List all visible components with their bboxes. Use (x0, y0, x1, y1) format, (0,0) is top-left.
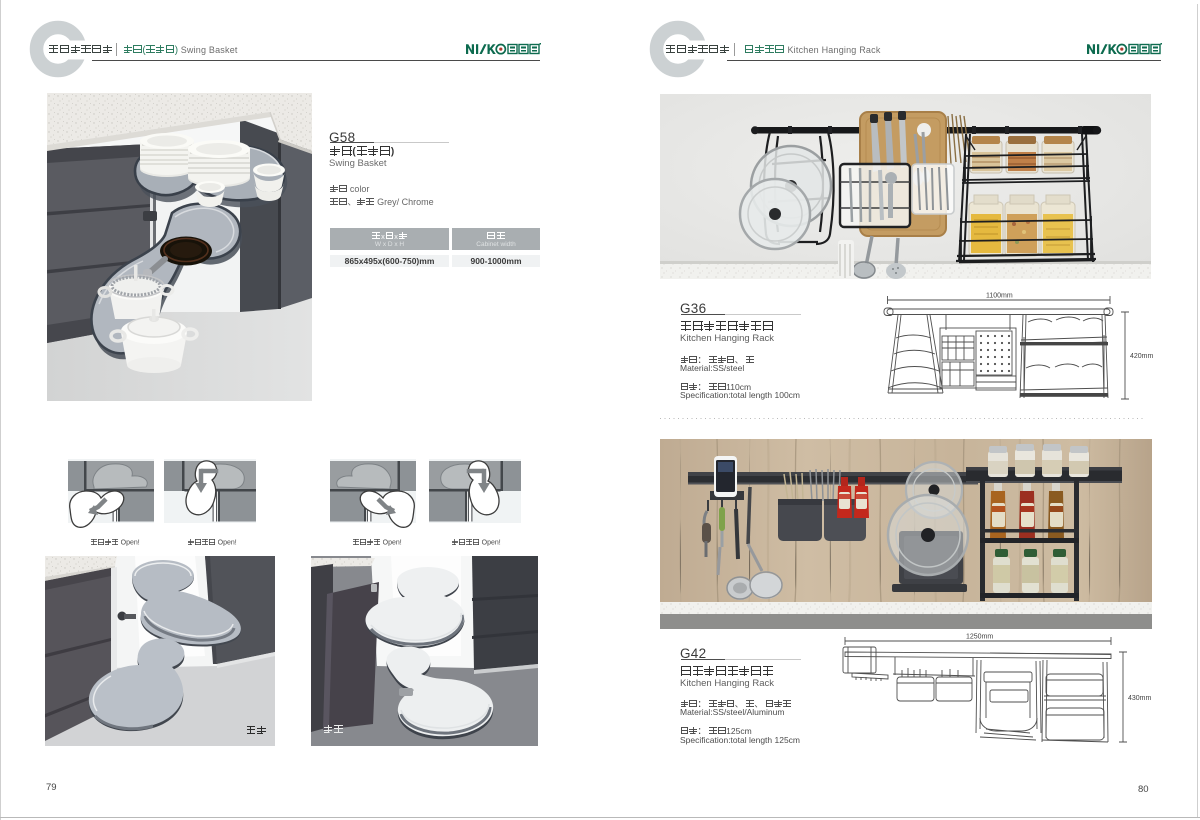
svg-text:430mm: 430mm (1128, 695, 1152, 702)
svg-text:1100mm: 1100mm (986, 293, 1013, 300)
svg-text:420mm: 420mm (1130, 353, 1154, 360)
svg-text:1250mm: 1250mm (966, 634, 993, 641)
